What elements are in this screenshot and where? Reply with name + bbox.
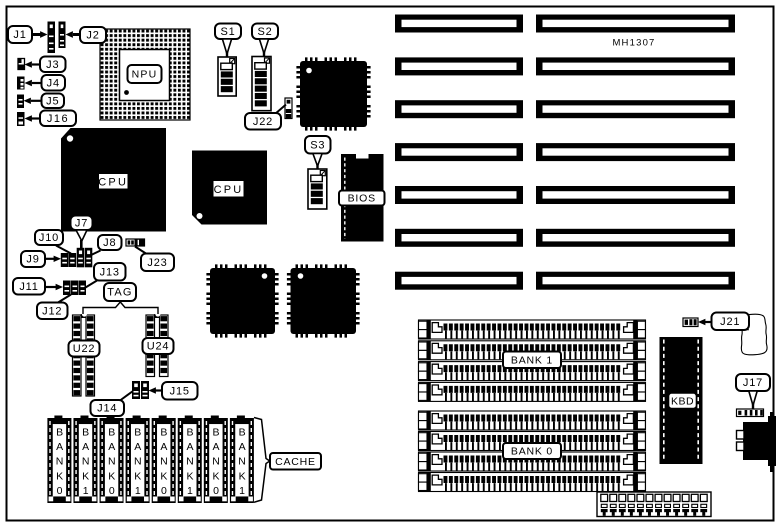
svg-text:J12: J12 <box>42 305 62 317</box>
svg-text:0: 0 <box>161 485 167 497</box>
svg-text:N: N <box>56 456 64 468</box>
svg-text:B: B <box>56 427 63 439</box>
svg-text:J8: J8 <box>103 237 116 249</box>
svg-text:A: A <box>82 441 89 453</box>
svg-text:0: 0 <box>57 485 63 497</box>
svg-text:1: 1 <box>83 485 89 497</box>
svg-text:K: K <box>56 470 63 482</box>
svg-text:K: K <box>213 470 220 482</box>
svg-text:K: K <box>134 470 141 482</box>
svg-text:B: B <box>186 427 193 439</box>
svg-text:J16: J16 <box>47 113 69 125</box>
svg-text:A: A <box>239 441 246 453</box>
svg-text:NPU: NPU <box>132 69 158 81</box>
svg-text:CPU: CPU <box>214 184 244 196</box>
svg-text:K: K <box>108 470 115 482</box>
svg-text:U24: U24 <box>147 341 170 353</box>
svg-text:J3: J3 <box>46 59 59 71</box>
svg-text:J15: J15 <box>170 385 190 397</box>
svg-text:S3: S3 <box>310 139 325 151</box>
svg-text:MH1307: MH1307 <box>612 38 655 49</box>
svg-text:N: N <box>160 456 168 468</box>
svg-text:1: 1 <box>239 485 245 497</box>
svg-text:A: A <box>160 441 167 453</box>
svg-text:A: A <box>186 441 193 453</box>
svg-text:A: A <box>56 441 63 453</box>
svg-text:N: N <box>108 456 116 468</box>
svg-text:KBD: KBD <box>671 395 694 407</box>
svg-text:B: B <box>82 427 89 439</box>
svg-text:N: N <box>134 456 142 468</box>
svg-text:J14: J14 <box>97 403 117 415</box>
svg-text:J21: J21 <box>720 316 740 328</box>
svg-text:B: B <box>213 427 220 439</box>
svg-text:N: N <box>186 456 194 468</box>
svg-text:N: N <box>82 456 90 468</box>
svg-text:J5: J5 <box>46 95 59 107</box>
svg-text:J9: J9 <box>26 254 39 266</box>
svg-text:K: K <box>186 470 193 482</box>
svg-text:J11: J11 <box>19 281 38 293</box>
svg-text:A: A <box>213 441 220 453</box>
svg-text:K: K <box>160 470 167 482</box>
svg-text:CACHE: CACHE <box>275 456 316 468</box>
svg-text:J17: J17 <box>743 377 763 389</box>
svg-text:J4: J4 <box>47 77 60 89</box>
svg-text:J1: J1 <box>13 29 26 41</box>
svg-text:J23: J23 <box>147 257 167 269</box>
svg-text:A: A <box>134 441 141 453</box>
svg-text:TAG: TAG <box>107 287 132 299</box>
svg-text:J13: J13 <box>100 266 120 278</box>
svg-text:A: A <box>108 441 115 453</box>
svg-text:1: 1 <box>135 485 141 497</box>
svg-text:N: N <box>212 456 220 468</box>
svg-text:1: 1 <box>187 485 193 497</box>
svg-text:B: B <box>108 427 115 439</box>
svg-text:N: N <box>238 456 246 468</box>
svg-text:K: K <box>239 470 246 482</box>
svg-text:B: B <box>134 427 141 439</box>
svg-text:J22: J22 <box>253 116 273 128</box>
svg-text:0: 0 <box>109 485 115 497</box>
svg-text:0: 0 <box>213 485 219 497</box>
svg-text:B: B <box>239 427 246 439</box>
svg-text:J10: J10 <box>39 232 59 244</box>
svg-text:J2: J2 <box>86 30 99 42</box>
svg-text:BIOS: BIOS <box>348 193 376 205</box>
svg-text:S2: S2 <box>257 26 272 38</box>
svg-text:U22: U22 <box>73 343 96 355</box>
svg-text:B: B <box>160 427 167 439</box>
svg-text:S1: S1 <box>220 26 235 38</box>
svg-text:K: K <box>82 470 89 482</box>
svg-text:J7: J7 <box>75 217 88 229</box>
svg-text:BANK 0: BANK 0 <box>511 446 553 458</box>
svg-text:CPU: CPU <box>98 177 128 189</box>
svg-text:BANK 1: BANK 1 <box>511 354 553 366</box>
